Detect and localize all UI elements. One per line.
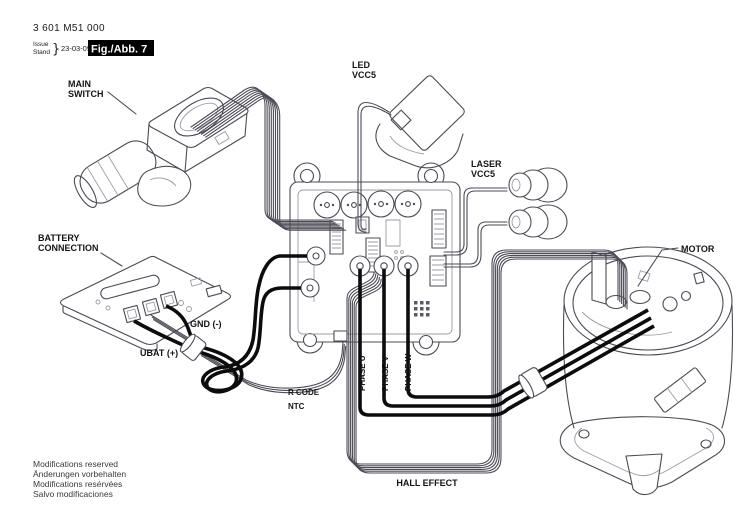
ntc-label: NTC xyxy=(288,402,305,411)
main-switch-leader xyxy=(108,92,136,114)
laser-modules-drawing xyxy=(509,168,567,239)
phase-w-label: PHASE W xyxy=(404,353,413,391)
battery-leader xyxy=(101,253,122,266)
phase-ferrite-bead xyxy=(516,366,548,400)
part-number: 3 601 M51 000 xyxy=(33,23,105,34)
gnd-label: GND (-) xyxy=(190,319,222,329)
battery-label-1: BATTERY xyxy=(38,233,80,243)
issue-brace: } xyxy=(52,42,60,57)
footer-line-3: Modifications resérvées xyxy=(33,479,122,489)
led-module-drawing xyxy=(376,74,466,168)
phase-u-label: PHASE U xyxy=(358,355,367,391)
battery-label-2: CONNECTION xyxy=(38,243,99,253)
pcb-small-connector xyxy=(334,331,347,341)
footer-line-2: Änderungen vorbehalten xyxy=(33,469,126,479)
laser-module-2 xyxy=(509,205,567,239)
battery-ferrite-bead xyxy=(178,332,207,361)
figure-label: Fig./Abb. 7 xyxy=(91,44,147,56)
pcb-mount-hole xyxy=(420,336,433,349)
phase-v-label: PHASE V xyxy=(381,355,390,391)
motor-side-block xyxy=(654,367,706,413)
wiring-diagram-page: 3 601 M51 000 Issue Stand } 23-03-09 Fig… xyxy=(0,0,750,530)
led-label-1: LED xyxy=(352,60,371,70)
pcb-drawing xyxy=(290,163,460,355)
main-switch-label-1: MAIN xyxy=(68,79,91,89)
motor-shaft xyxy=(626,454,662,495)
motor-label: MOTOR xyxy=(681,244,715,254)
laser-label-2: VCC5 xyxy=(471,169,495,179)
ubat-label: UBAT (+) xyxy=(140,348,178,358)
led-label-2: VCC5 xyxy=(352,70,376,80)
motor-drawing xyxy=(560,247,732,495)
pcb-mount-hole xyxy=(425,170,438,183)
main-switch-label-2: SWITCH xyxy=(68,89,104,99)
pcb-mount-hole xyxy=(304,334,317,347)
footer-line-4: Salvo modificaciones xyxy=(33,489,113,499)
stand-label: Stand xyxy=(33,49,50,56)
pcb-laser-connector xyxy=(430,256,446,286)
issue-date: 23-03-09 xyxy=(61,44,91,53)
pcb-ribbon-connector xyxy=(330,220,343,254)
wiring-diagram: 3 601 M51 000 Issue Stand } 23-03-09 Fig… xyxy=(0,0,750,530)
pcb-pad-grid xyxy=(414,301,430,317)
issue-label: Issue xyxy=(33,41,49,48)
footer-line-1: Modifications reserved xyxy=(33,459,118,469)
header: 3 601 M51 000 Issue Stand } 23-03-09 Fig… xyxy=(33,23,154,57)
battery-connector-drawing xyxy=(61,256,231,350)
laser-module-1 xyxy=(509,168,567,202)
r-code-label: R CODE xyxy=(288,388,320,397)
hall-effect-label: HALL EFFECT xyxy=(396,478,458,488)
footer-notes: Modifications reserved Änderungen vorbeh… xyxy=(33,459,126,499)
laser-label-1: LASER xyxy=(471,159,502,169)
led-plate xyxy=(388,74,466,152)
pcb-mount-hole xyxy=(301,170,314,183)
pcb-right-connector xyxy=(432,210,446,248)
